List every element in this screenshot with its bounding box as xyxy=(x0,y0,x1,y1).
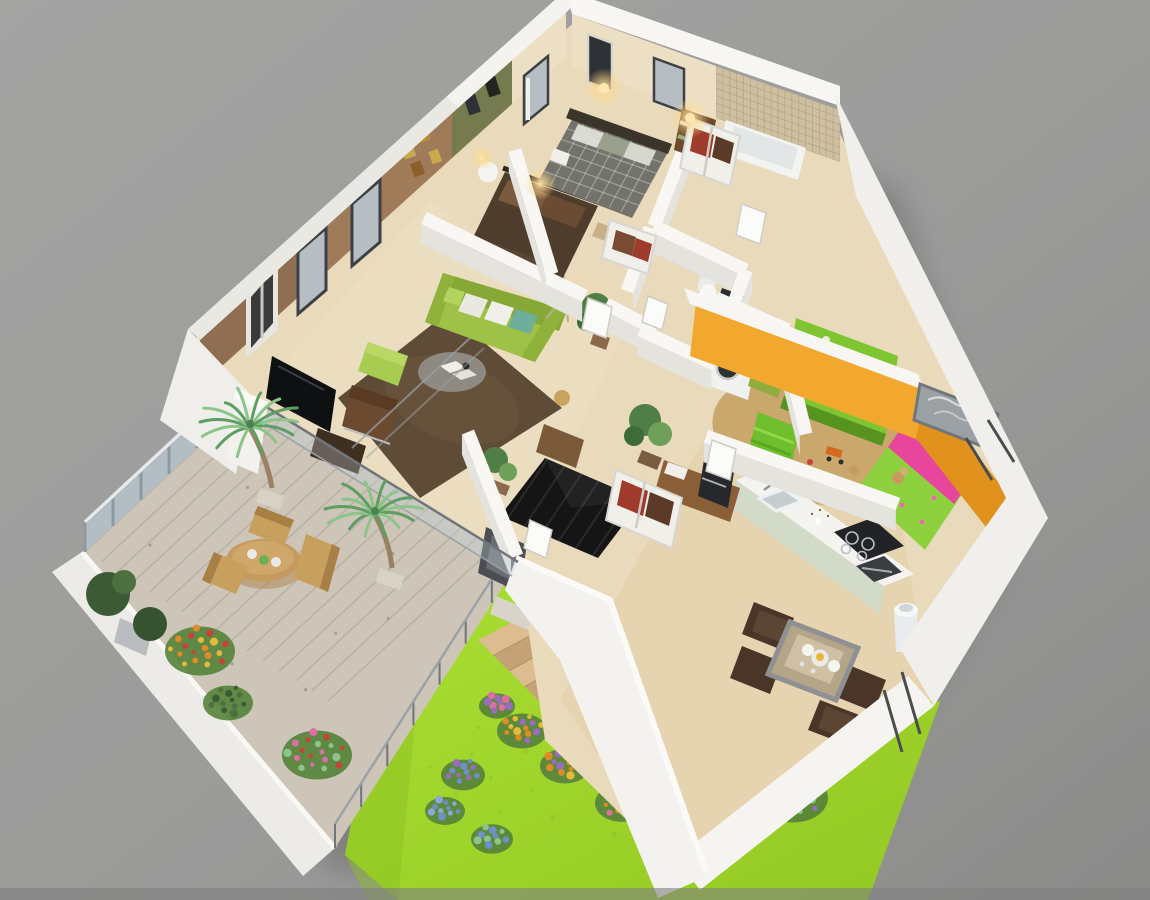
flower-bed xyxy=(499,704,505,710)
grass-speckle xyxy=(454,793,457,796)
flower-bed xyxy=(491,708,497,714)
flower-bush-blue xyxy=(466,775,472,781)
flower-bush-blue xyxy=(456,773,461,778)
flower-bush-blue xyxy=(446,806,451,811)
flower-bush-blue xyxy=(438,812,446,820)
flower-bush-blue xyxy=(474,836,482,844)
grass-speckle xyxy=(531,789,534,792)
deck-flower-orange xyxy=(210,638,218,646)
deck-flower-orange xyxy=(168,646,173,651)
deck-flower-orange xyxy=(193,625,200,632)
deck-flower-orange xyxy=(205,652,212,659)
deck-flower-orange xyxy=(219,658,225,664)
flower-bush-blue xyxy=(435,796,443,804)
plank-knot xyxy=(231,662,234,665)
flower-bed xyxy=(508,724,513,729)
floor-plan-render xyxy=(0,0,1150,900)
floor-plan-stage xyxy=(0,0,1150,900)
deck-flower-pink xyxy=(292,739,299,746)
plank-knot xyxy=(387,617,390,620)
flower-bush-blue xyxy=(468,759,473,764)
glass-1 xyxy=(800,662,805,667)
flower-bush-blue xyxy=(474,773,480,779)
plank-knot xyxy=(246,486,249,489)
deck-flower-orange xyxy=(198,637,204,643)
deck-flower-pink xyxy=(320,750,325,755)
sconce-bulb-1 xyxy=(599,83,609,93)
flower-bush-blue xyxy=(470,765,476,771)
deck-plate-1 xyxy=(247,549,257,559)
flower-bush-blue xyxy=(494,838,501,845)
flower-bed xyxy=(501,695,509,703)
deck-flower-pink xyxy=(340,746,344,750)
grass-speckle xyxy=(550,814,555,819)
deck-flower-orange xyxy=(177,651,182,656)
deck-flower-pink xyxy=(283,749,291,757)
flower-bush-blue xyxy=(503,836,509,842)
flower-bed xyxy=(523,725,528,730)
grass-speckle xyxy=(489,775,493,779)
deck-hedge xyxy=(241,702,246,707)
deck-flower-pink xyxy=(294,755,300,761)
deck-flower-pink xyxy=(323,734,329,740)
grass-speckle xyxy=(556,839,559,842)
deck-flower-orange xyxy=(202,645,208,651)
flower-bush-blue xyxy=(448,811,453,816)
flower-bed xyxy=(607,810,613,816)
flower-bush-blue xyxy=(428,808,435,815)
deck-flower-pink xyxy=(310,762,314,766)
grass-speckle xyxy=(611,832,616,837)
grass-speckle xyxy=(477,726,480,729)
flower-bush-blue xyxy=(482,824,488,830)
deck-flower-pink xyxy=(315,741,321,747)
flower-bush-pink xyxy=(812,806,817,811)
flower-bed xyxy=(545,752,553,760)
deck-flower-orange-foliage xyxy=(165,627,235,676)
flower-bed xyxy=(513,727,521,735)
deck-hedge xyxy=(225,690,232,697)
flower-bush-blue xyxy=(446,774,452,780)
flower-bush-blue xyxy=(464,769,470,775)
plank-knot xyxy=(334,632,337,635)
flower-bed xyxy=(488,692,495,699)
plate-2 xyxy=(828,660,840,672)
plank-knot xyxy=(304,688,307,691)
deck-hedge xyxy=(237,692,243,698)
flower-bush-blue xyxy=(485,841,493,849)
flower-bed xyxy=(566,771,574,779)
deck-flower-pink xyxy=(308,754,313,759)
plate-1 xyxy=(802,644,814,656)
deck-flower-pink xyxy=(321,766,327,772)
flower-bush-blue xyxy=(449,768,455,774)
flower-bed xyxy=(505,702,513,710)
flower-bed xyxy=(604,803,608,807)
flower-bed xyxy=(527,714,532,719)
deck-flower-orange xyxy=(191,650,195,654)
flower-bed xyxy=(525,730,531,736)
flower-bed xyxy=(556,762,564,770)
deck-flower-pink xyxy=(336,762,343,769)
deck-flower-pink xyxy=(329,743,334,748)
deck-flower-pink xyxy=(332,753,340,761)
food xyxy=(816,653,824,661)
deck-flower-pink xyxy=(309,728,317,736)
grass-speckle xyxy=(469,752,473,756)
flower-bush-blue xyxy=(456,809,461,814)
flower-bed xyxy=(533,728,540,735)
flower-bed xyxy=(520,719,526,725)
deck-flower-orange xyxy=(192,658,198,664)
flower-bush-blue xyxy=(457,778,462,783)
flower-bed xyxy=(551,759,556,764)
flower-bed xyxy=(512,716,518,722)
deck-table-plant xyxy=(259,555,269,565)
deck-flower-pink xyxy=(306,737,311,742)
basket xyxy=(554,390,570,406)
flower-bed xyxy=(504,730,509,735)
planter-shrub-2 xyxy=(133,607,167,641)
deck-hedge xyxy=(232,703,238,709)
deck-flower-pink xyxy=(322,757,328,763)
flower-bed xyxy=(494,695,500,701)
plank-knot xyxy=(148,543,151,546)
deck-flower-orange xyxy=(204,662,210,668)
flower-bed xyxy=(515,734,522,741)
deck-flower-pink-foliage xyxy=(282,731,352,780)
flower-bush-blue xyxy=(460,762,467,769)
deck-hedge xyxy=(234,686,238,690)
deck-flower-orange xyxy=(206,629,213,636)
sconce-glow-3 xyxy=(524,168,556,200)
grass-speckle xyxy=(498,810,501,813)
flower-bush-blue xyxy=(453,759,461,767)
deck-hedge xyxy=(220,701,226,707)
deck-hedge xyxy=(218,687,223,692)
flower-bed xyxy=(558,769,565,776)
grass-speckle xyxy=(428,766,431,769)
deck-flower-orange xyxy=(188,632,194,638)
deck-flower-orange xyxy=(175,636,182,643)
flower-bush-blue xyxy=(499,829,504,834)
flower-bed xyxy=(546,764,553,771)
bottom-edge-strip xyxy=(0,888,1150,900)
flower-bed xyxy=(502,718,509,725)
deck-hedge xyxy=(221,707,227,713)
deck-plate-2 xyxy=(271,557,281,567)
table-lamp-glow xyxy=(470,146,494,170)
deck-flower-orange xyxy=(216,650,222,656)
teddy-on-floor xyxy=(849,465,859,475)
flower-bush-blue xyxy=(443,800,448,805)
palm-crown xyxy=(371,507,379,515)
deck-hedge xyxy=(230,698,235,703)
planter-shrub-1b xyxy=(112,570,136,594)
deck-flower-orange xyxy=(182,643,188,649)
flower-bush-blue xyxy=(489,826,497,834)
deck-hedge xyxy=(230,709,238,717)
deck-flower-pink xyxy=(300,747,305,752)
deck-hedge xyxy=(212,695,220,703)
flower-bush-blue xyxy=(432,804,438,810)
grass-speckle xyxy=(523,749,528,754)
flower-bed xyxy=(524,738,530,744)
deck-flower-pink xyxy=(298,765,304,771)
glass-2 xyxy=(811,669,816,674)
deck-hedge xyxy=(209,702,215,708)
deck-flower-orange xyxy=(182,661,187,666)
palm-crown xyxy=(246,420,254,428)
flower-bush-blue xyxy=(452,802,456,806)
sconce-bulb-2 xyxy=(685,113,695,123)
flower-bed xyxy=(530,720,536,726)
deck-flower-orange xyxy=(222,641,229,648)
